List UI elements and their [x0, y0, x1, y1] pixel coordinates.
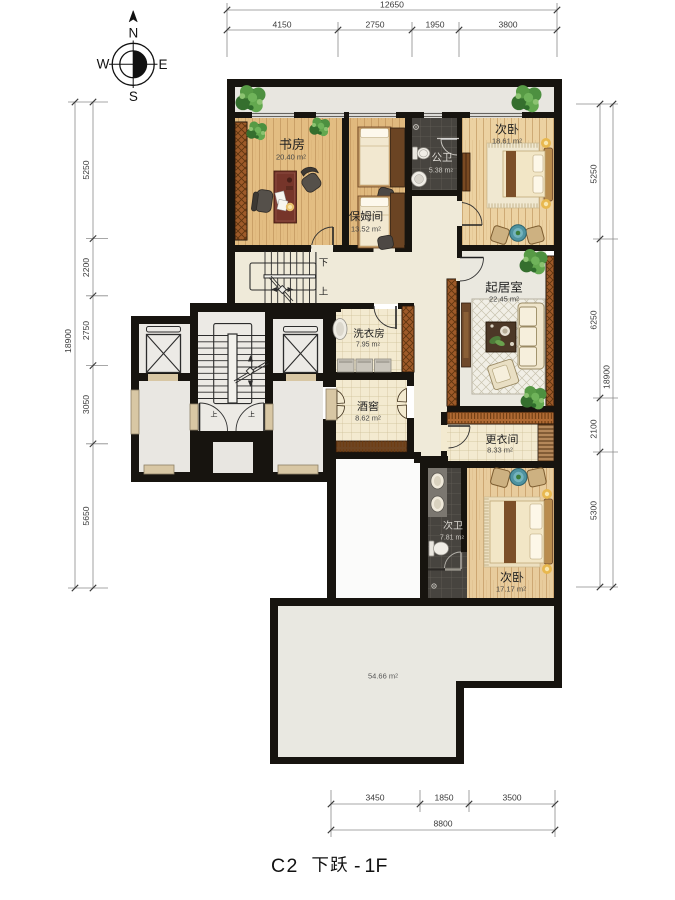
svg-text:1950: 1950	[425, 20, 444, 30]
svg-text:7.81 m2: 7.81 m2	[440, 534, 464, 542]
svg-text:2: 2	[287, 855, 298, 877]
svg-text:3450: 3450	[365, 793, 384, 803]
svg-text:5250: 5250	[81, 160, 91, 179]
svg-text:2200: 2200	[81, 258, 91, 277]
svg-text:2100: 2100	[589, 419, 599, 438]
svg-text:18900: 18900	[63, 329, 73, 353]
svg-text:17.17 m2: 17.17 m2	[496, 585, 526, 594]
svg-text:3800: 3800	[498, 20, 517, 30]
svg-text:5650: 5650	[81, 506, 91, 525]
svg-text:-: -	[354, 855, 361, 877]
svg-text:12650: 12650	[380, 0, 404, 10]
svg-text:W: W	[97, 57, 110, 72]
svg-text:18.61 m2: 18.61 m2	[492, 137, 522, 146]
svg-text:8.62 m2: 8.62 m2	[355, 414, 381, 423]
svg-text:F: F	[376, 855, 388, 877]
svg-text:2750: 2750	[365, 20, 384, 30]
svg-text:20.40 m2: 20.40 m2	[276, 153, 306, 162]
svg-text:1850: 1850	[434, 793, 453, 803]
svg-text:6250: 6250	[589, 310, 599, 329]
svg-text:8.33 m2: 8.33 m2	[487, 446, 513, 455]
svg-text:8800: 8800	[433, 819, 452, 829]
svg-text:22.45 m2: 22.45 m2	[489, 295, 519, 304]
svg-text:S: S	[129, 89, 138, 104]
svg-text:5300: 5300	[589, 501, 599, 520]
svg-text:13.52 m2: 13.52 m2	[351, 225, 381, 234]
svg-text:18900: 18900	[602, 365, 612, 389]
svg-text:C: C	[271, 855, 285, 877]
svg-text:E: E	[158, 57, 167, 72]
svg-text:3500: 3500	[502, 793, 521, 803]
svg-text:54.66 m2: 54.66 m2	[368, 672, 398, 681]
svg-text:3050: 3050	[81, 395, 91, 414]
svg-text:1: 1	[365, 855, 376, 877]
svg-text:7.95 m2: 7.95 m2	[356, 341, 380, 349]
svg-text:5.38 m2: 5.38 m2	[429, 167, 453, 175]
svg-text:2750: 2750	[81, 321, 91, 340]
svg-text:5250: 5250	[589, 164, 599, 183]
svg-text:4150: 4150	[272, 20, 291, 30]
svg-text:N: N	[129, 26, 139, 41]
